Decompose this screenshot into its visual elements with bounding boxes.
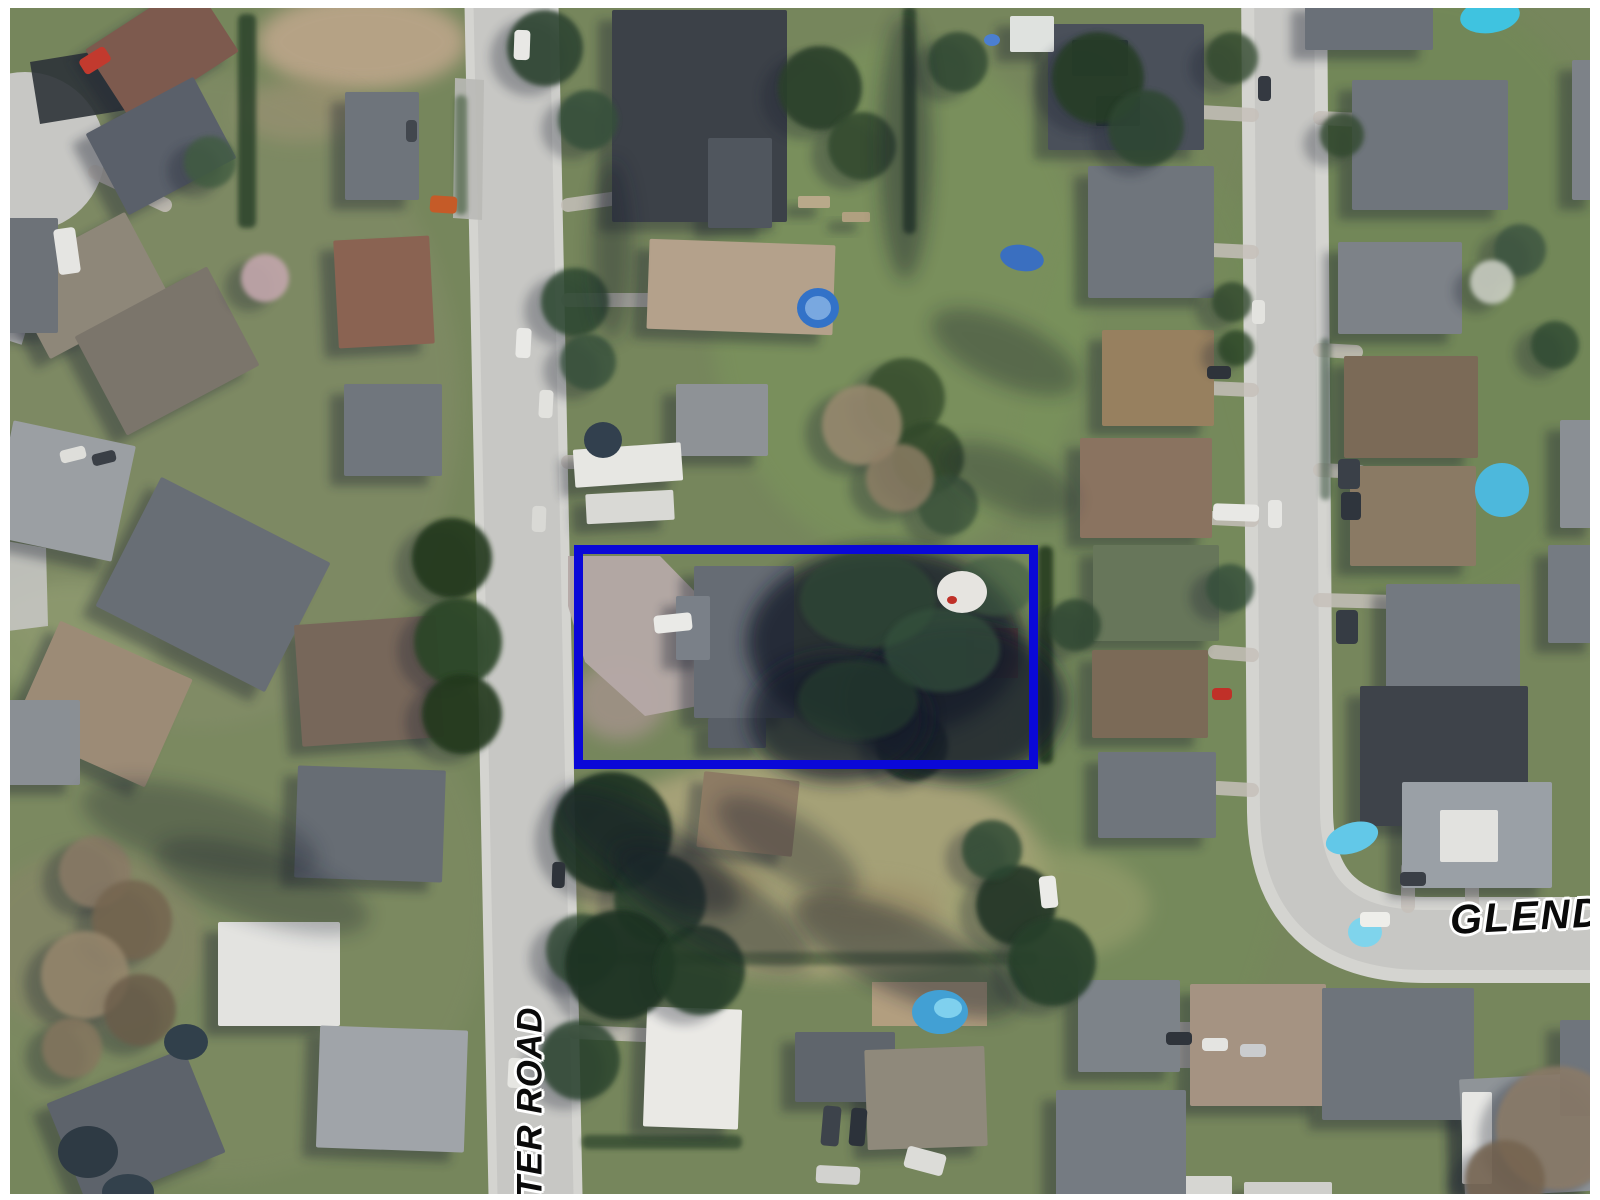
building-roof <box>1338 242 1462 334</box>
property-boundary-rectangle <box>574 545 1038 769</box>
tree <box>1218 330 1254 366</box>
photo-frame-border-right <box>1590 0 1600 1200</box>
building-roof <box>1010 16 1054 52</box>
tree <box>42 1018 102 1078</box>
vehicle <box>406 120 417 142</box>
vehicle <box>848 1107 867 1146</box>
building-roof <box>585 490 674 525</box>
vehicle <box>1341 492 1361 520</box>
pool <box>805 296 831 320</box>
building-roof <box>0 700 80 785</box>
vehicle <box>538 390 553 419</box>
driveway <box>1208 388 1252 390</box>
driveway <box>1212 250 1252 252</box>
tree <box>928 32 988 92</box>
building-roof <box>1102 330 1214 426</box>
building-shadow <box>828 222 856 232</box>
building-roof <box>1088 166 1214 298</box>
building-roof <box>798 196 830 208</box>
tree <box>1320 113 1364 157</box>
pool <box>58 1126 118 1178</box>
hedge <box>1320 338 1331 500</box>
building-roof <box>1386 584 1520 692</box>
building-roof <box>218 922 340 1026</box>
street-label-ter-road: TER ROAD <box>513 1007 548 1198</box>
building-roof <box>316 1025 468 1152</box>
driveway <box>1200 112 1252 115</box>
aerial-map-screenshot: TER ROAD GLENDALE <box>0 0 1600 1200</box>
building-roof <box>1078 980 1180 1072</box>
driveway <box>1215 652 1252 655</box>
pool <box>1475 463 1529 517</box>
pool <box>934 998 962 1018</box>
tree <box>412 518 492 598</box>
building-roof <box>1080 438 1212 538</box>
building-roof <box>676 384 768 456</box>
tree-shadow-mass <box>879 16 931 280</box>
vehicle <box>1400 872 1426 886</box>
vehicle <box>429 195 457 214</box>
street-label-glendale: GLENDALE <box>1449 887 1600 941</box>
vehicle <box>816 1165 861 1185</box>
photo-frame-border-left <box>0 0 10 1200</box>
tree <box>560 334 616 390</box>
vehicle <box>1268 500 1282 528</box>
pool <box>584 422 622 458</box>
vehicle <box>532 506 547 532</box>
tree <box>414 598 502 686</box>
vehicle <box>552 862 566 888</box>
building-roof <box>294 765 446 882</box>
vehicle <box>1207 366 1231 379</box>
photo-frame-border-top <box>0 0 1600 8</box>
vehicle <box>1360 912 1390 927</box>
vehicle <box>1213 503 1260 522</box>
tree <box>1108 90 1184 166</box>
tree-shadow-mass <box>592 160 632 340</box>
tree <box>1206 32 1258 84</box>
building-roof <box>1440 810 1498 862</box>
tree <box>1531 321 1579 369</box>
building-roof <box>1098 752 1216 838</box>
building-roof <box>333 236 435 349</box>
vehicle <box>1038 875 1058 909</box>
building-roof <box>1352 80 1508 210</box>
vehicle <box>1202 1038 1228 1051</box>
tree <box>558 90 618 150</box>
building-roof <box>1344 356 1478 458</box>
pool <box>984 34 1000 46</box>
building-roof <box>1056 1090 1186 1198</box>
vehicle <box>1258 76 1271 101</box>
tree <box>1206 564 1254 612</box>
hedge <box>238 14 256 228</box>
tree <box>1008 918 1096 1006</box>
tree <box>540 1020 620 1100</box>
tree <box>1049 599 1101 651</box>
tree <box>422 674 502 754</box>
building-roof <box>344 384 442 476</box>
building-roof <box>1350 466 1476 566</box>
photo-frame-border-bottom <box>0 1194 1600 1200</box>
tree <box>184 136 236 188</box>
building-roof <box>1322 988 1474 1120</box>
building-roof <box>643 1006 742 1129</box>
vehicle <box>1212 688 1232 700</box>
vehicle <box>820 1105 841 1146</box>
driveway <box>1218 788 1252 790</box>
vehicle <box>515 328 532 359</box>
vehicle <box>1338 459 1360 489</box>
building-roof <box>842 212 870 222</box>
vehicle <box>1336 610 1358 644</box>
building-roof <box>345 92 419 200</box>
pool <box>164 1024 208 1060</box>
tree <box>1470 260 1514 304</box>
building-roof <box>864 1046 987 1150</box>
vehicle <box>1240 1044 1266 1057</box>
tree <box>104 974 176 1046</box>
vehicle <box>1166 1032 1192 1045</box>
tree <box>962 820 1022 880</box>
tree <box>241 254 289 302</box>
hedge <box>455 95 467 215</box>
building-roof <box>1092 650 1208 738</box>
tree <box>866 444 934 512</box>
vehicle <box>1252 300 1265 324</box>
building-roof <box>708 138 772 228</box>
tree <box>1212 282 1252 322</box>
vehicle <box>513 30 530 61</box>
